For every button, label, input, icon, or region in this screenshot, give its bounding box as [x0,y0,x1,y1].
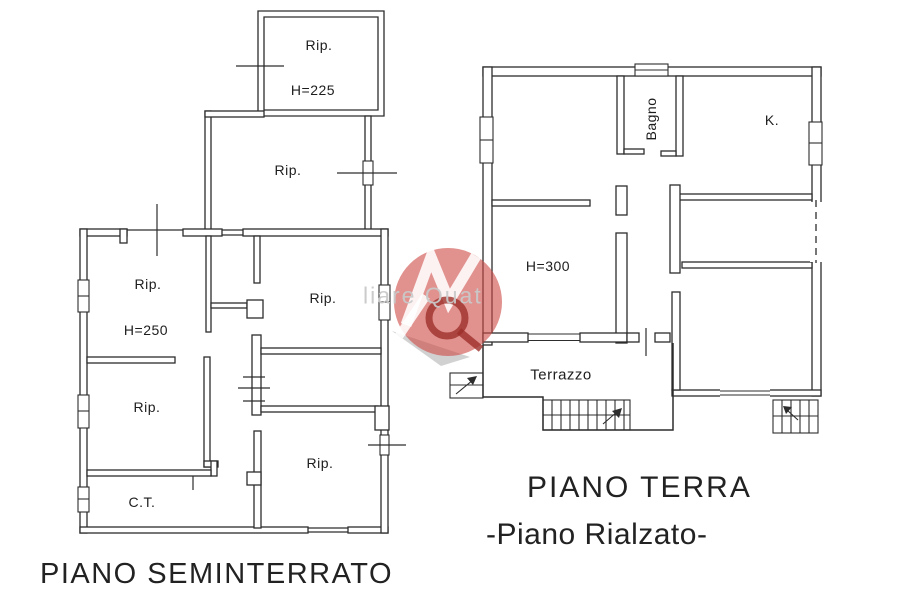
room-label-rip-ne: Rip. [310,290,337,306]
terrace-stairs [543,400,630,430]
terra-subtitle: -Piano Rialzato- [486,518,707,552]
room-height-h300: H=300 [526,258,570,274]
seminterrato-walls [80,11,389,533]
scanned-floorplan-page: liare Quat Rip. H=225 Rip. Rip. H=250 Ri… [0,0,900,600]
room-label-rip-west: Rip. [134,399,161,415]
terra-title: PIANO TERRA [527,471,752,505]
terrace-outline [483,343,673,430]
room-label-kitchen: K. [765,112,779,128]
room-label-rip-se: Rip. [307,455,334,471]
seminterrato-title: PIANO SEMINTERRATO [40,558,393,591]
terra-open-side-dashed [810,200,823,263]
room-height-h225: H=225 [291,82,335,98]
room-label-boiler: C.T. [129,494,156,510]
room-label-rip-upper: Rip. [275,162,302,178]
entrance-stairs [773,400,818,433]
room-label-rip-top: Rip. [306,37,333,53]
watermark-text: liare Quat [363,283,483,310]
terrace-side-steps [450,373,483,398]
room-height-h250: H=250 [124,322,168,338]
room-label-bathroom: Bagno [643,98,659,141]
room-label-terrace: Terrazzo [530,367,592,384]
room-label-rip-nw: Rip. [135,276,162,292]
